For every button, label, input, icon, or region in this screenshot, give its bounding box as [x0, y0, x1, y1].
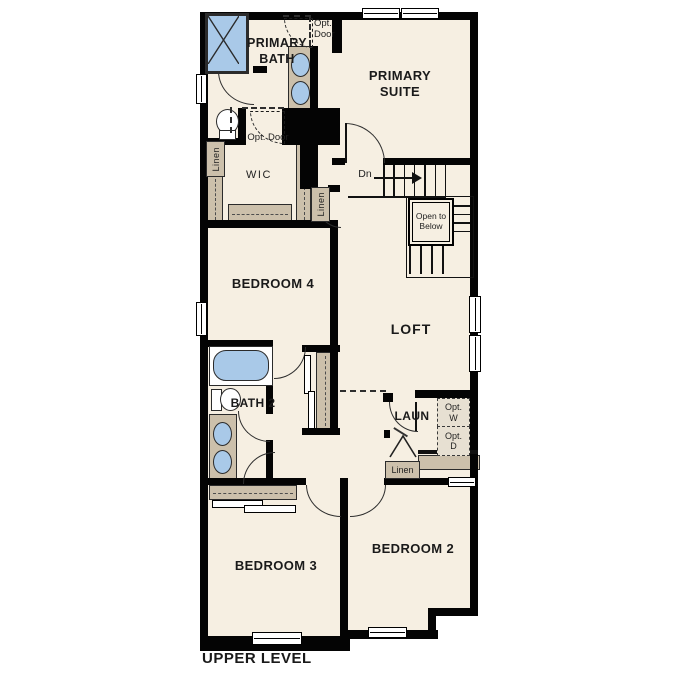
bedroom4-closet-slider-1 — [304, 355, 311, 394]
linen-primary-bath: Linen — [206, 141, 225, 177]
wall-wc-right — [238, 108, 246, 145]
primary-suite-label: PRIMARY SUITE — [352, 68, 448, 101]
opt-dryer-box: Opt. D — [437, 426, 470, 456]
loft-label: LOFT — [379, 321, 443, 339]
shower-x-icon — [208, 16, 239, 64]
stair-tread — [404, 165, 406, 197]
primary-bath-sink-2 — [291, 81, 310, 105]
opt-washer-box: Opt. W — [437, 398, 470, 427]
stair-tread — [435, 165, 437, 197]
plan-title: UPPER LEVEL — [202, 650, 312, 667]
opt-door-wic-label: Opt. Door — [247, 133, 289, 144]
bath2-sink-2 — [213, 450, 232, 474]
open-to-below-label: Open to Below — [414, 212, 448, 232]
bath2-label: BATH 2 — [229, 396, 277, 411]
stair-tread — [445, 165, 447, 197]
stair-tread — [424, 165, 426, 197]
opt-door-suite-label: Opt. Door — [314, 19, 352, 41]
bedroom3-closet-shelf — [209, 485, 297, 500]
linen-laundry: Linen — [385, 461, 420, 479]
window-loft-right-2 — [469, 335, 481, 372]
wall-bedroom2-top-linen — [384, 478, 420, 485]
stairs-down-label: Dn — [354, 168, 376, 180]
window-bedroom4-left — [196, 302, 207, 336]
wall-notch-vertical — [428, 608, 436, 637]
opt-washer-label: Opt. W — [443, 402, 465, 423]
wall-bedroom4-right — [330, 228, 338, 345]
linen-hall: Linen — [311, 187, 330, 222]
wall-bedroom4-closet-bottom — [302, 428, 340, 435]
floorplan-canvas: { "title": "UPPER LEVEL", "colors": { "f… — [0, 0, 687, 687]
wic-label: WIC — [240, 169, 278, 181]
stairs-down-arrow-line — [374, 177, 414, 179]
linen-hall-label: Linen — [316, 192, 326, 217]
window-bedroom2-top — [448, 477, 476, 487]
loft-laundry-dashed-line — [340, 390, 386, 394]
wall-block-bath-wic — [282, 108, 340, 145]
bedroom4-closet-slider-2 — [308, 391, 315, 429]
primary-bath-label: PRIMARY BATH — [238, 36, 316, 67]
window-bath-left — [196, 74, 207, 104]
wall-bedroom4-closet-right — [330, 345, 338, 435]
bedroom3-label: BEDROOM 3 — [220, 558, 332, 574]
opt-dryer-label: Opt. D — [443, 431, 465, 452]
window-loft-right-1 — [469, 296, 481, 333]
bedroom4-label: BEDROOM 4 — [217, 276, 329, 292]
open-to-below-box: Open to Below — [408, 198, 454, 246]
wall-hall-left — [300, 145, 318, 189]
window-suite-top-2 — [401, 8, 439, 19]
window-bedroom2-bottom — [368, 627, 407, 638]
wall-suite-bottom-right — [383, 158, 478, 165]
stairs-down-arrow-head — [412, 172, 422, 184]
tub — [213, 350, 269, 381]
bath2-sink-1 — [213, 422, 232, 446]
primary-suite-door-leaf — [345, 123, 347, 163]
window-bedroom3-bottom — [252, 632, 302, 645]
linen-primary-bath-label: Linen — [211, 147, 221, 172]
wic-rail-left — [206, 175, 223, 224]
wall-suite-bottom-left — [332, 158, 345, 165]
opt-door-wic-dash-v — [230, 107, 234, 133]
bedroom3-closet-slider-2 — [244, 505, 296, 513]
stair-tread — [383, 165, 385, 197]
wall-bedroom-divider — [340, 478, 348, 638]
linen-laundry-label: Linen — [391, 465, 413, 475]
bedroom2-label: BEDROOM 2 — [357, 541, 469, 557]
laundry-label: LAUN — [387, 409, 437, 424]
stair-tread — [393, 165, 395, 197]
wall-laundry-top-stub — [383, 393, 393, 402]
laundry-closet-bifold — [388, 433, 418, 459]
window-suite-top-1 — [362, 8, 400, 19]
wall-laundry-top-right — [415, 390, 478, 398]
